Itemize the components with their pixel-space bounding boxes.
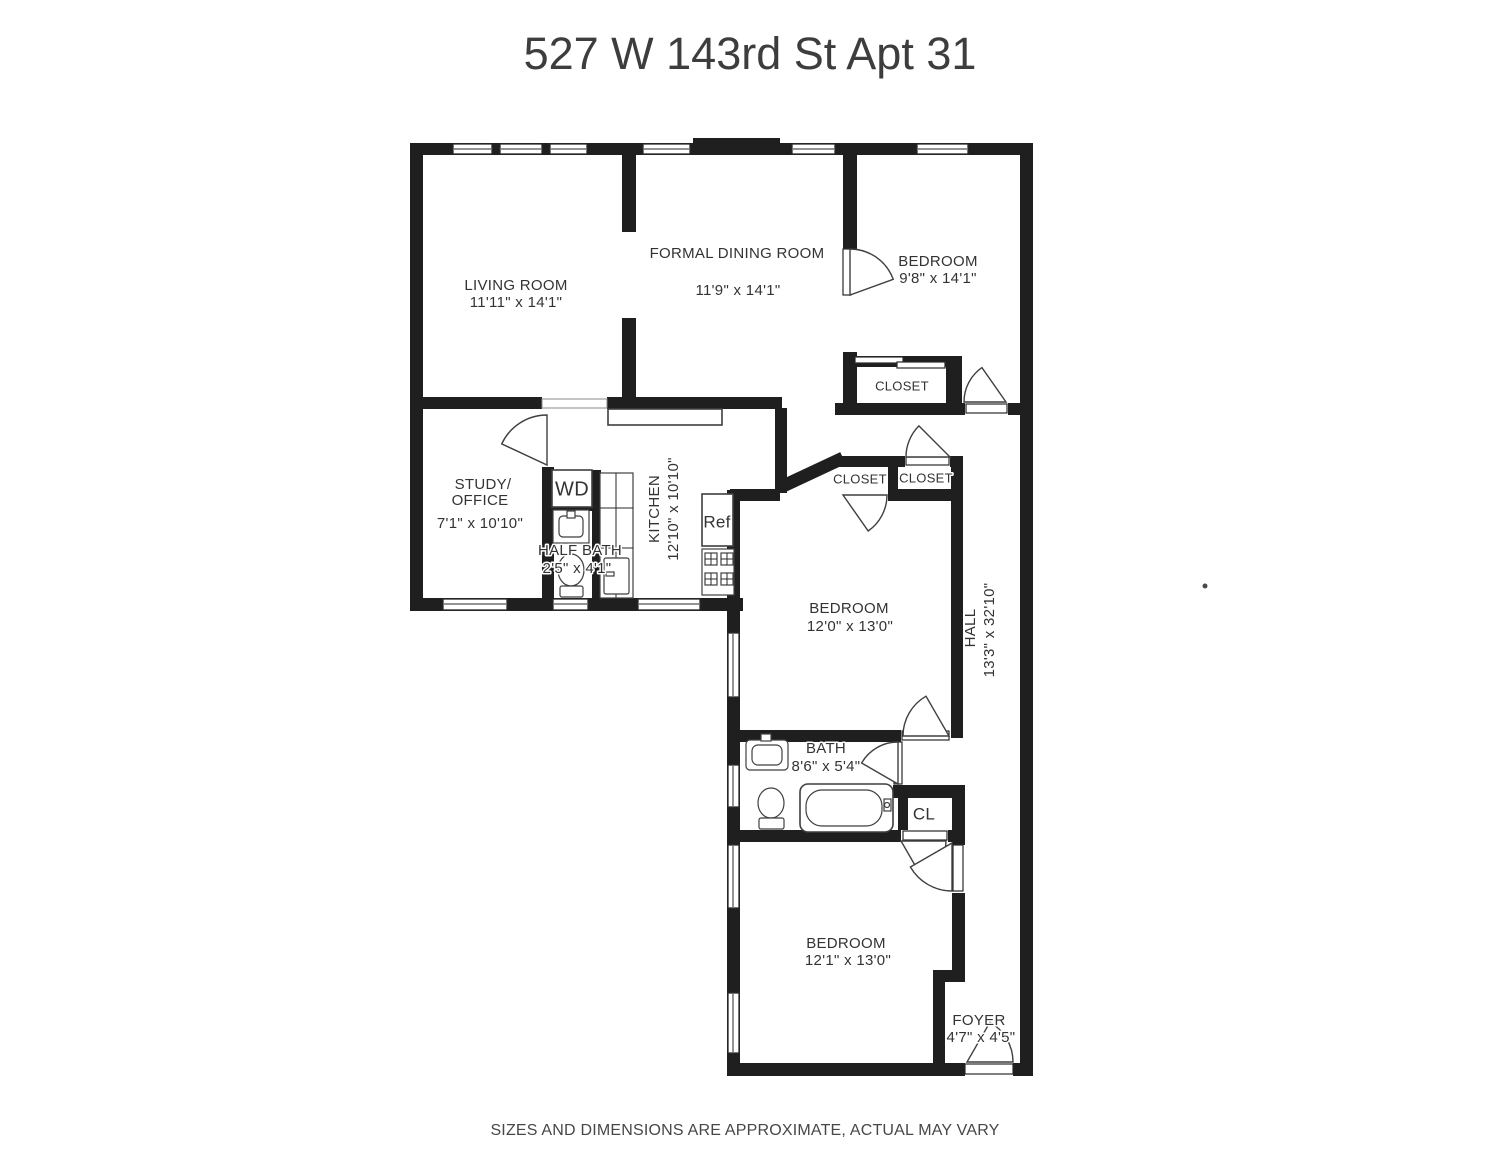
door-panel	[906, 457, 949, 465]
kitchen-counter	[608, 409, 722, 425]
floor-plan-page: 527 W 143rd St Apt 31	[0, 0, 1500, 1159]
bedroom-mid-label: BEDROOM	[809, 600, 889, 617]
study-label-line1: STUDY/	[455, 476, 512, 493]
stove	[702, 549, 734, 595]
window	[638, 599, 700, 610]
doors	[502, 249, 1013, 1074]
sink	[746, 734, 788, 770]
foyer-label: FOYER	[952, 1012, 1005, 1029]
door-panel	[965, 1064, 1013, 1074]
hall-dims: 13'3" x 32'10"	[981, 583, 998, 678]
wall	[952, 893, 965, 978]
window	[553, 599, 588, 610]
bedroom-bottom-dims: 12'1" x 13'0"	[805, 952, 891, 969]
closet-mid-left-label: CLOSET	[833, 471, 887, 486]
wall	[622, 318, 636, 409]
wall	[946, 356, 962, 406]
wall	[622, 155, 636, 232]
bedroom-top-dims: 9'8" x 14'1"	[899, 270, 977, 287]
bedroom-mid-dims: 12'0" x 13'0"	[807, 618, 893, 635]
kitchen-cabinets	[600, 473, 633, 598]
wall	[693, 138, 780, 146]
wall	[888, 458, 898, 501]
wall	[933, 970, 945, 1075]
wall	[1020, 143, 1033, 1076]
wall	[730, 489, 780, 501]
door-arc	[862, 742, 898, 784]
door-arc	[964, 368, 1006, 402]
wall	[607, 397, 782, 409]
wall	[1008, 403, 1020, 415]
closet-mid-right-label: CLOSET	[899, 470, 953, 485]
window	[917, 144, 968, 154]
half-bath-dims: 2'5" x 4'1"	[543, 560, 612, 577]
wall	[948, 830, 965, 842]
wall	[835, 403, 965, 415]
closet-small-label: CL	[913, 804, 935, 823]
hall-label: HALL	[962, 609, 979, 648]
bedroom-bottom-label: BEDROOM	[806, 935, 886, 952]
window	[728, 633, 739, 697]
window	[728, 993, 739, 1053]
washer-dryer-label: WD	[555, 478, 589, 500]
window	[550, 144, 587, 154]
half-bath-label: HALF BATH	[538, 542, 622, 559]
floor-plan-canvas: 527 W 143rd St Apt 31	[0, 0, 1500, 1159]
wall	[727, 1063, 965, 1076]
study-dims: 7'1" x 10'10"	[437, 515, 523, 532]
kitchen-dims: 12'10" x 10'10"	[665, 457, 682, 560]
bedroom-top-label: BEDROOM	[898, 253, 978, 270]
door-panel	[966, 404, 1007, 413]
wall	[898, 798, 908, 830]
living-room-dims: 11'11" x 14'1"	[470, 294, 563, 311]
living-room-label: LIVING ROOM	[464, 277, 567, 294]
window	[728, 845, 739, 908]
sliding-door-panel	[855, 357, 903, 363]
kitchen-label: KITCHEN	[646, 475, 663, 543]
window	[643, 144, 690, 154]
foyer-dims: 4'7" x 4'5"	[947, 1029, 1016, 1046]
door-arc	[906, 426, 950, 457]
bath-dims: 8'6" x 5'4"	[792, 758, 861, 775]
wall	[951, 456, 963, 738]
bathtub	[800, 784, 893, 832]
wall	[410, 143, 423, 608]
window	[792, 144, 835, 154]
sink	[553, 510, 589, 543]
door-panel	[903, 831, 947, 840]
opening-living-to-hall	[542, 399, 607, 408]
window	[443, 599, 507, 610]
door-arc	[850, 249, 893, 295]
closet-top-label: CLOSET	[875, 378, 929, 393]
bath-label: BATH	[806, 740, 846, 757]
door-arc	[843, 495, 887, 531]
toilet	[758, 788, 784, 829]
door-arc	[502, 415, 547, 465]
window	[453, 144, 492, 154]
door-panel	[953, 845, 963, 891]
page-title: 527 W 143rd St Apt 31	[524, 28, 977, 79]
footer-disclaimer: SIZES AND DIMENSIONS ARE APPROXIMATE, AC…	[490, 1122, 999, 1139]
study-label-line2: OFFICE	[452, 492, 509, 509]
dining-room-label: FORMAL DINING ROOM	[650, 245, 825, 262]
refrigerator-label: Ref	[703, 512, 730, 531]
window	[500, 144, 542, 154]
sliding-door-panel	[897, 362, 945, 368]
dining-room-dims: 11'9" x 14'1"	[695, 282, 780, 299]
wall	[410, 397, 542, 409]
window	[728, 765, 739, 807]
print-artifact-dot	[1203, 584, 1208, 589]
door-arc	[903, 696, 949, 736]
